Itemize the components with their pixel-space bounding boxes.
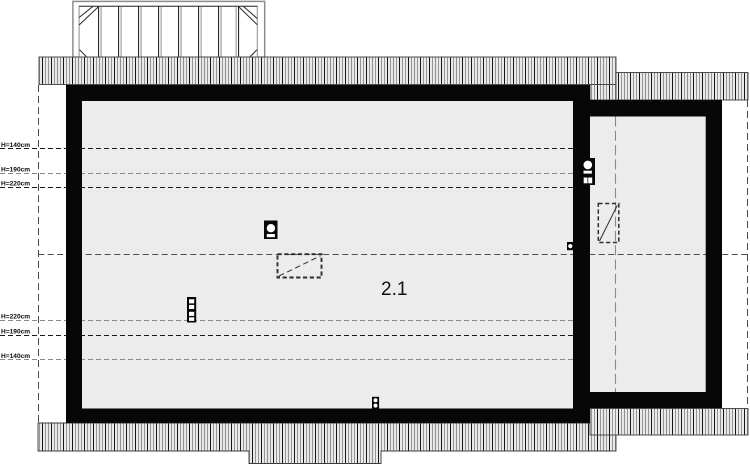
svg-text:H=190cm: H=190cm xyxy=(1,329,30,336)
svg-text:H=140cm: H=140cm xyxy=(1,142,30,149)
svg-text:H=220cm: H=220cm xyxy=(1,314,30,321)
svg-text:H=140cm: H=140cm xyxy=(1,353,30,360)
svg-text:H=190cm: H=190cm xyxy=(1,167,30,174)
svg-text:H=220cm: H=220cm xyxy=(1,181,30,188)
svg-text:2.1: 2.1 xyxy=(381,279,407,300)
